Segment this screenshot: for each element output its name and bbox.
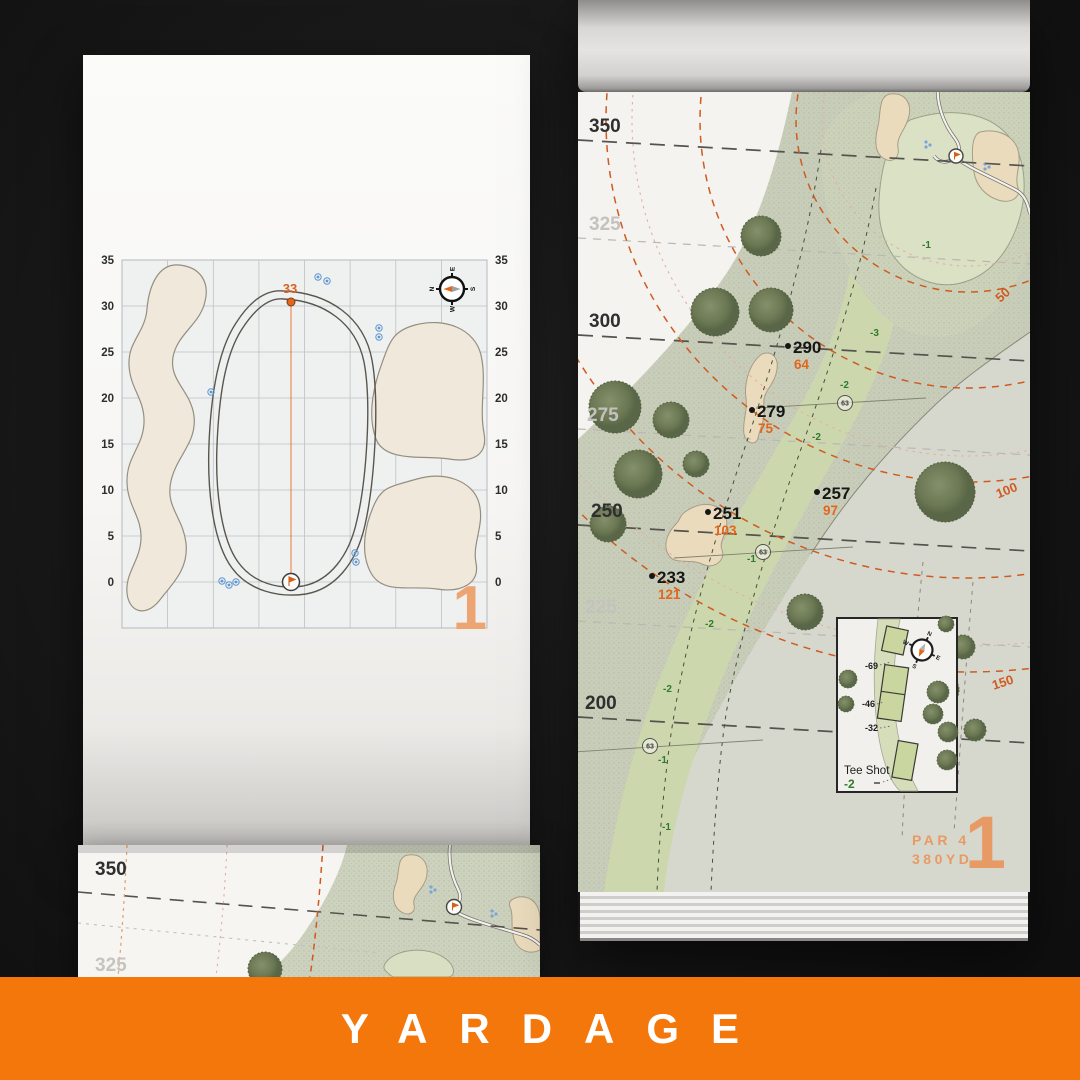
left-book-stack: 33 xyxy=(83,55,530,977)
svg-text:-1: -1 xyxy=(658,755,667,766)
partial-hole-map: 350 325 xyxy=(78,845,540,977)
tee-shot-title: Tee Shot xyxy=(844,765,890,777)
next-hole-partial-page: 350 325 xyxy=(78,845,540,977)
svg-text:W: W xyxy=(449,305,456,312)
svg-text:N: N xyxy=(429,286,436,291)
svg-text:325: 325 xyxy=(589,214,621,235)
svg-text:63: 63 xyxy=(646,744,654,751)
svg-text:-69: -69 xyxy=(865,661,878,671)
svg-text:-1: -1 xyxy=(662,822,671,833)
svg-text:-2: -2 xyxy=(812,432,821,443)
svg-text:5: 5 xyxy=(495,531,502,543)
svg-text:63: 63 xyxy=(759,550,767,557)
svg-text:15: 15 xyxy=(495,439,508,451)
svg-text:300: 300 xyxy=(589,311,621,332)
pin-icon xyxy=(283,574,300,591)
svg-text:290: 290 xyxy=(793,338,821,357)
svg-text:25: 25 xyxy=(495,347,508,359)
pin-distance-label: 33 xyxy=(283,281,297,296)
svg-text:-2: -2 xyxy=(705,619,714,630)
green-detail-map: 33 xyxy=(83,55,530,845)
svg-text:-46: -46 xyxy=(862,699,875,709)
svg-text:-1: -1 xyxy=(747,554,756,565)
distance-label: 350 xyxy=(95,859,127,880)
yardage-label: 380YD xyxy=(912,851,972,867)
svg-text:20: 20 xyxy=(495,393,508,405)
svg-text:0: 0 xyxy=(108,577,114,589)
svg-text:S: S xyxy=(470,286,477,291)
par-label: PAR 4 xyxy=(912,832,970,848)
svg-text:97: 97 xyxy=(823,503,838,518)
svg-text:350: 350 xyxy=(589,116,621,137)
sprinkler-head-icon: 63 xyxy=(838,396,853,411)
banner-title: YARDAGE xyxy=(309,1005,771,1053)
svg-text:225: 225 xyxy=(585,597,617,618)
svg-text:-1: -1 xyxy=(922,240,931,251)
yardage-banner: YARDAGE xyxy=(0,977,1080,1080)
hole-map: 63 63 63 350 325 300 275 250 225 200 xyxy=(578,92,1030,892)
pin-icon xyxy=(447,900,462,915)
svg-text:35: 35 xyxy=(495,255,508,267)
folded-cover-edge xyxy=(578,0,1030,92)
yardage-book-poster: 33 xyxy=(0,0,1080,1080)
svg-text:233: 233 xyxy=(657,568,685,587)
svg-text:25: 25 xyxy=(101,347,114,359)
tee-slope-label: -2 xyxy=(844,777,855,791)
svg-text:0: 0 xyxy=(495,577,501,589)
stacked-page-edges xyxy=(580,892,1028,941)
svg-text:63: 63 xyxy=(841,401,849,408)
svg-text:20: 20 xyxy=(101,393,114,405)
svg-text:30: 30 xyxy=(101,301,114,313)
hole-number: 1 xyxy=(965,801,1006,884)
svg-text:-3: -3 xyxy=(870,328,879,339)
tee-shot-inset: -69 -46 -32 Tee Shot -2 NE SW xyxy=(837,616,958,792)
svg-text:200: 200 xyxy=(585,693,617,714)
sprinkler-head-icon: 63 xyxy=(756,545,771,560)
svg-text:E: E xyxy=(449,266,456,271)
bunker-right-bottom xyxy=(365,476,481,590)
hole-number: 1 xyxy=(453,574,487,643)
svg-text:-2: -2 xyxy=(840,380,849,391)
svg-text:5: 5 xyxy=(108,531,115,543)
svg-text:257: 257 xyxy=(822,484,850,503)
tree xyxy=(248,952,282,977)
svg-text:75: 75 xyxy=(758,421,774,436)
svg-text:251: 251 xyxy=(713,504,741,523)
distance-label: 325 xyxy=(95,955,127,976)
svg-text:30: 30 xyxy=(495,301,508,313)
hole-yardage-page: 63 63 63 350 325 300 275 250 225 200 xyxy=(578,0,1030,940)
svg-text:103: 103 xyxy=(714,523,737,538)
svg-text:10: 10 xyxy=(101,485,114,497)
svg-text:121: 121 xyxy=(658,587,681,602)
svg-text:275: 275 xyxy=(587,405,619,426)
depth-marker-dot xyxy=(287,298,295,306)
svg-text:-2: -2 xyxy=(663,684,672,695)
svg-text:250: 250 xyxy=(591,501,623,522)
green-detail-page: 33 xyxy=(83,55,530,845)
svg-text:10: 10 xyxy=(495,485,508,497)
svg-text:279: 279 xyxy=(757,402,785,421)
svg-text:35: 35 xyxy=(101,255,114,267)
page-shadow xyxy=(78,845,540,853)
svg-text:15: 15 xyxy=(101,439,114,451)
svg-text:-32: -32 xyxy=(865,723,878,733)
sprinkler-head-icon: 63 xyxy=(643,739,658,754)
svg-text:64: 64 xyxy=(794,357,810,372)
